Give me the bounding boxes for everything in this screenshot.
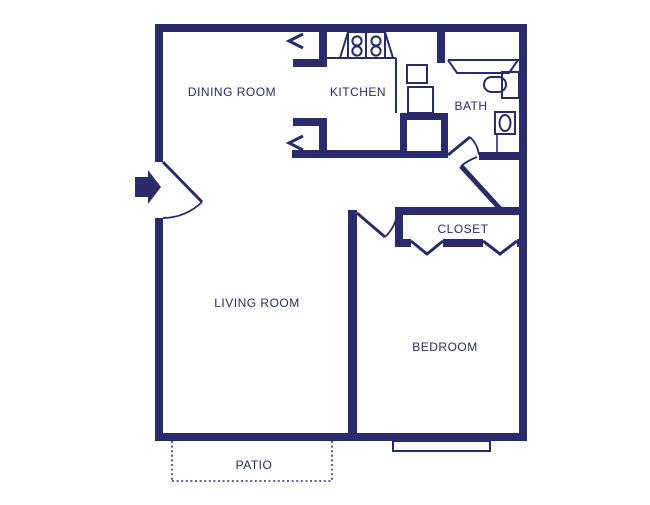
bifold-door-icon (411, 241, 443, 254)
burner-icon (371, 46, 380, 55)
top-wall (155, 24, 527, 32)
closet-label: CLOSET (437, 222, 488, 236)
pantry-interior (407, 120, 441, 151)
closet-bottom-wall-right (517, 239, 527, 247)
kitchen-label: KITCHEN (330, 85, 386, 99)
burner-icon (371, 36, 380, 45)
kitchen-fixtures (327, 32, 433, 113)
closet-top-wall (395, 207, 527, 215)
burner-icon (352, 36, 361, 45)
kitchen-bath-wall (437, 32, 445, 63)
bedroom-window-icon (393, 441, 490, 451)
right-wall (519, 24, 527, 441)
left-wall-upper (155, 24, 163, 162)
counter-break-left (340, 32, 348, 58)
floorplan-svg: DINING ROOM KITCHEN BATH CLOSET LIVING R… (0, 0, 650, 505)
closet-bottom-wall-mid (443, 239, 483, 247)
kitchen-sink-icon (407, 65, 427, 83)
left-wall-lower (155, 218, 163, 441)
hall-door-swing (461, 157, 477, 166)
patio-label: PATIO (236, 458, 273, 472)
interior-walls (292, 32, 527, 441)
bottom-wall (155, 433, 527, 441)
bath-label: BATH (454, 99, 487, 113)
counter-break-right (385, 32, 393, 58)
bath-door-swing (470, 137, 479, 155)
dining-room-label: DINING ROOM (188, 85, 276, 99)
dining-kitchen-wing-lower (293, 118, 327, 126)
window-and-patio (172, 441, 490, 481)
entry-door-swing (163, 202, 202, 218)
entry-arrow-icon (135, 170, 161, 204)
floorplan-image: DINING ROOM KITCHEN BATH CLOSET LIVING R… (0, 0, 650, 505)
toilet-bowl-icon (500, 115, 511, 131)
opening-chevron-icon (289, 34, 303, 48)
vanity-icon (502, 72, 519, 98)
burner-icon (352, 46, 361, 55)
bedroom-label: BEDROOM (412, 340, 478, 354)
opening-chevron-icon (289, 136, 303, 150)
living-bedroom-wall (348, 210, 357, 441)
refrigerator-icon (408, 87, 433, 113)
living-room-label: LIVING ROOM (214, 296, 300, 310)
bedroom-door-leaf (357, 213, 385, 237)
closet-bottom-wall-left (395, 239, 411, 247)
dining-kitchen-wing-upper (293, 59, 327, 67)
hall-door-leaf (461, 166, 503, 212)
entry-door-leaf (163, 162, 202, 202)
bath-bottom-wall (479, 152, 527, 160)
bifold-door-icon (483, 241, 517, 254)
bath-door-leaf (448, 137, 470, 155)
